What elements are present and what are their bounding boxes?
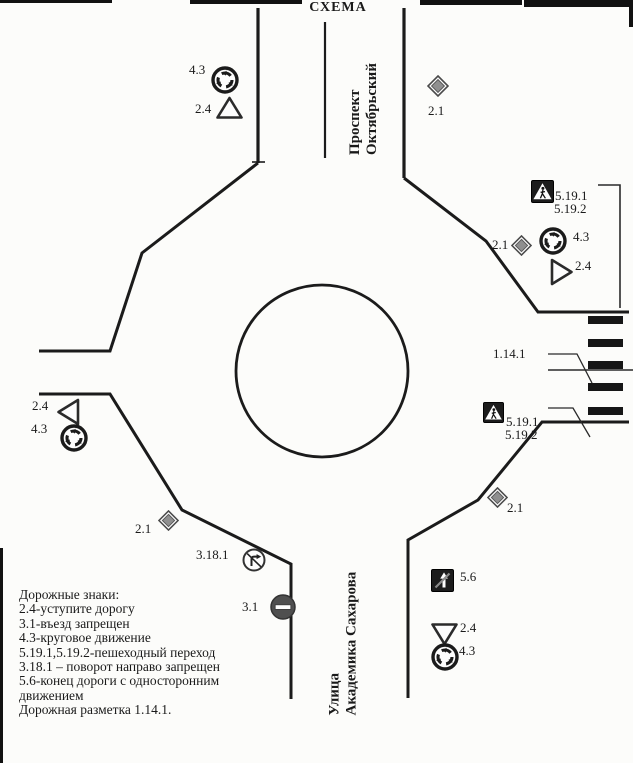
sign-label-4-3: 4.3 bbox=[573, 229, 589, 245]
legend-heading: Дорожные знаки: bbox=[19, 588, 339, 602]
street-name-north: Проспект Октябрьский bbox=[347, 45, 383, 155]
sign-label-2-1: 2.1 bbox=[507, 500, 523, 516]
sign-label-2-4: 2.4 bbox=[195, 101, 211, 117]
sign-label-2-1: 2.1 bbox=[492, 237, 508, 253]
curb-line-northeast bbox=[598, 185, 620, 308]
sign-label-4-3: 4.3 bbox=[31, 421, 47, 437]
crosswalk-marking bbox=[588, 316, 623, 415]
sign-label-4-3: 4.3 bbox=[459, 643, 475, 659]
street-name-north-line2: Октябрьский bbox=[364, 45, 381, 155]
give-way-sign-icon bbox=[216, 95, 243, 125]
legend: Дорожные знаки: 2.4-уступите дорогу 3.1-… bbox=[19, 588, 339, 718]
page-title: СХЕМА bbox=[308, 0, 368, 16]
legend-item-4-3: 4.3-круговое движение bbox=[19, 631, 339, 645]
give-way-sign-icon bbox=[545, 259, 575, 286]
legend-item-2-4: 2.4-уступите дорогу bbox=[19, 602, 339, 616]
roundabout-sign-icon bbox=[60, 424, 88, 457]
legend-item-5-6-line2: движением bbox=[19, 689, 339, 703]
sign-label-3-18-1: 3.18.1 bbox=[196, 547, 229, 563]
priority-road-sign-icon bbox=[158, 510, 179, 536]
roundabout-sign-icon bbox=[539, 227, 567, 260]
pedestrian-crossing-sign-icon bbox=[531, 180, 554, 208]
sign-label-5-19-2: 5.19.2 bbox=[554, 201, 587, 217]
street-name-north-line1: Проспект bbox=[347, 45, 364, 155]
road-edge-northwest bbox=[39, 163, 258, 351]
legend-item-5-19: 5.19.1,5.19.2-пешеходный переход bbox=[19, 646, 339, 660]
roundabout-island bbox=[236, 285, 408, 457]
sign-label-2-4: 2.4 bbox=[575, 258, 591, 274]
sign-label-5-6: 5.6 bbox=[460, 569, 476, 585]
sign-label-2-1: 2.1 bbox=[135, 521, 151, 537]
give-way-sign-icon bbox=[56, 399, 86, 426]
sign-label-2-4: 2.4 bbox=[32, 398, 48, 414]
end-one-way-sign-icon bbox=[431, 569, 454, 597]
legend-item-3-18-1: 3.18.1 – поворот направо запрещен bbox=[19, 660, 339, 674]
marking-label-1-14-1: 1.14.1 bbox=[493, 346, 526, 362]
no-right-turn-sign-icon bbox=[242, 548, 266, 577]
sign-label-5-19-2: 5.19.2 bbox=[505, 427, 538, 443]
sign-label-2-1: 2.1 bbox=[428, 103, 444, 119]
legend-item-marking: Дорожная разметка 1.14.1. bbox=[19, 703, 339, 717]
sign-label-4-3: 4.3 bbox=[189, 62, 205, 78]
roundabout-sign-icon bbox=[431, 643, 459, 676]
priority-road-sign-icon bbox=[511, 235, 532, 261]
sign-label-2-4: 2.4 bbox=[460, 620, 476, 636]
legend-item-3-1: 3.1-въезд запрещен bbox=[19, 617, 339, 631]
pedestrian-crossing-sign-icon bbox=[483, 402, 504, 428]
street-name-south-line2: Академика Сахарова bbox=[344, 561, 361, 716]
callout-line-marking-upper bbox=[548, 354, 592, 383]
scheme-canvas: СХЕМА Проспект Октябрьский Улица Академи… bbox=[0, 0, 633, 763]
priority-road-sign-icon bbox=[427, 75, 449, 102]
priority-road-sign-icon bbox=[487, 487, 508, 513]
legend-item-5-6-line1: 5.6-конец дороги с односторонним bbox=[19, 674, 339, 688]
